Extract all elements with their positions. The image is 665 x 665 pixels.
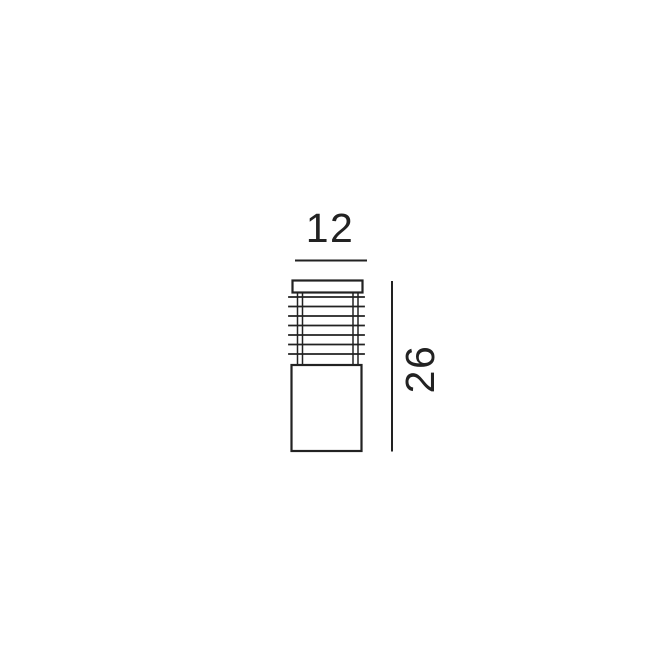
lamp-body xyxy=(292,365,362,451)
height-dimension-label: 26 xyxy=(397,345,443,394)
lamp-cap xyxy=(293,281,363,293)
height-dimension: 26 xyxy=(392,281,443,452)
bollard-light-drawing xyxy=(289,281,364,452)
width-dimension: 12 xyxy=(295,205,367,261)
width-dimension-label: 12 xyxy=(306,205,355,251)
diagram-canvas: 12 26 xyxy=(0,0,665,665)
product-dimension-diagram: 12 26 xyxy=(0,0,665,665)
